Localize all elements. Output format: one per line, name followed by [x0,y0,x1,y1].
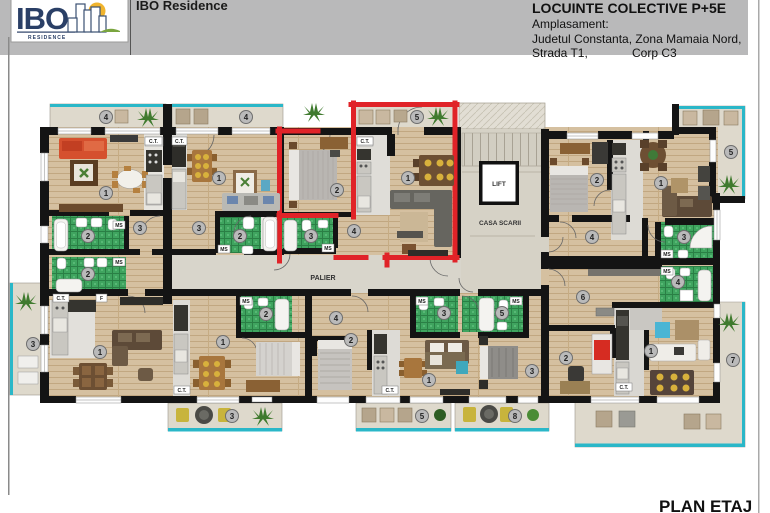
svg-text:2: 2 [86,232,91,241]
svg-text:Corp C3: Corp C3 [632,46,677,60]
svg-text:3: 3 [309,232,314,241]
svg-text:3: 3 [530,367,535,376]
svg-text:MS: MS [220,247,228,253]
svg-text:4: 4 [334,314,339,323]
svg-text:1: 1 [427,376,432,385]
svg-text:IBO Residence: IBO Residence [136,0,228,13]
svg-text:LOCUINTE COLECTIVE P+5E: LOCUINTE COLECTIVE P+5E [532,0,726,16]
svg-text:5: 5 [500,309,505,318]
svg-text:5: 5 [729,148,734,157]
svg-text:3: 3 [31,340,36,349]
svg-text:7: 7 [731,356,736,365]
svg-text:1: 1 [406,174,411,183]
svg-text:PLAN ETAJ: PLAN ETAJ [659,497,752,513]
svg-text:1: 1 [217,174,222,183]
svg-text:MS: MS [663,269,671,275]
svg-text:3: 3 [197,224,202,233]
svg-text:4: 4 [352,227,357,236]
svg-text:IBO: IBO [16,1,68,36]
svg-text:5: 5 [420,412,425,421]
svg-text:MS: MS [663,252,671,258]
svg-text:MS: MS [418,299,426,305]
svg-text:1: 1 [221,338,226,347]
svg-text:C.T.: C.T. [175,139,185,145]
svg-text:4: 4 [590,233,595,242]
svg-text:CASA SCARII: CASA SCARII [479,220,521,227]
svg-text:C.T.: C.T. [386,388,396,394]
svg-text:Judetul Constanta, Zona Mamaia: Judetul Constanta, Zona Mamaia Nord, [532,32,741,46]
svg-text:LIFT: LIFT [492,181,506,188]
svg-text:5: 5 [415,113,420,122]
svg-text:2: 2 [264,310,269,319]
svg-text:MS: MS [512,299,520,305]
svg-text:Strada T1,: Strada T1, [532,46,588,60]
svg-text:1: 1 [649,347,654,356]
svg-text:3: 3 [442,309,447,318]
svg-text:2: 2 [349,336,354,345]
svg-text:2: 2 [564,354,569,363]
svg-text:4: 4 [244,113,249,122]
svg-text:4: 4 [676,278,681,287]
svg-text:C.T.: C.T. [57,296,67,302]
svg-text:4: 4 [104,113,109,122]
svg-text:C.T.: C.T. [178,388,188,394]
svg-text:6: 6 [581,293,586,302]
svg-text:1: 1 [98,348,103,357]
svg-text:2: 2 [238,232,243,241]
svg-text:F: F [100,296,103,302]
svg-text:3: 3 [682,233,687,242]
svg-text:C.T.: C.T. [149,139,159,145]
svg-text:1: 1 [659,179,664,188]
svg-text:3: 3 [230,412,235,421]
svg-text:RESIDENCE: RESIDENCE [28,35,66,41]
svg-text:3: 3 [138,224,143,233]
svg-text:2: 2 [595,176,600,185]
svg-text:8: 8 [513,412,518,421]
svg-text:2: 2 [335,186,340,195]
svg-text:MS: MS [115,223,123,229]
svg-text:MS: MS [115,260,123,266]
svg-text:C.T.: C.T. [361,139,371,145]
svg-text:MS: MS [324,246,332,252]
svg-text:2: 2 [86,270,91,279]
svg-text:C.T.: C.T. [620,385,630,391]
svg-text:PALIER: PALIER [310,275,335,282]
svg-text:1: 1 [104,189,109,198]
svg-text:MS: MS [242,299,250,305]
svg-text:Amplasament:: Amplasament: [532,17,609,31]
